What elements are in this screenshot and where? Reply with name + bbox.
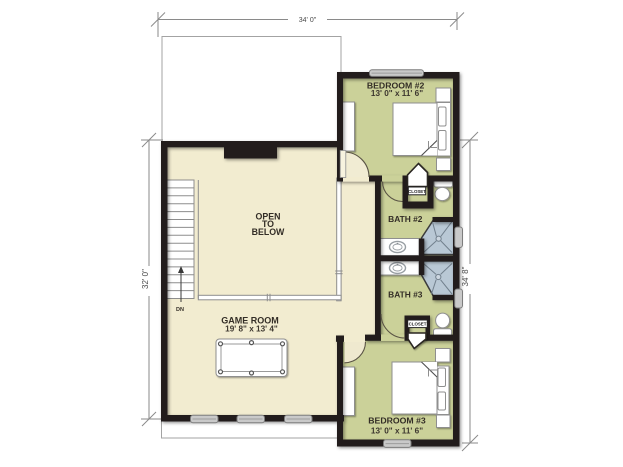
svg-text:BATH #3: BATH #3: [388, 289, 423, 299]
svg-text:BEDROOM #3: BEDROOM #3: [368, 416, 426, 426]
svg-text:DN: DN: [176, 307, 184, 313]
svg-text:13' 0" x 11' 6": 13' 0" x 11' 6": [371, 89, 423, 98]
svg-text:BATH #2: BATH #2: [388, 214, 423, 224]
svg-text:CLOSET: CLOSET: [409, 322, 427, 327]
svg-text:32' 0": 32' 0": [141, 269, 150, 289]
svg-text:BELOW: BELOW: [252, 227, 285, 237]
svg-text:CLOSET: CLOSET: [408, 189, 426, 194]
svg-text:34' 8": 34' 8": [461, 266, 470, 286]
svg-text:34' 0": 34' 0": [299, 17, 317, 24]
svg-text:13' 0" x 11' 6": 13' 0" x 11' 6": [371, 427, 423, 436]
svg-text:19' 8" x 13' 4": 19' 8" x 13' 4": [225, 325, 278, 334]
